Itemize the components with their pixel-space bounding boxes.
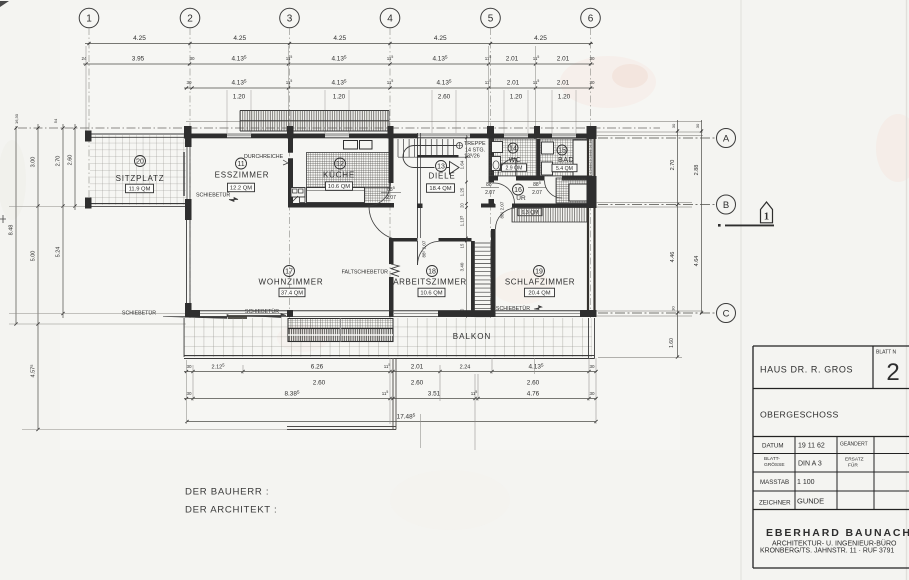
svg-text:KRONBERG/TS. JAHNSTR. 11 · RUF: KRONBERG/TS. JAHNSTR. 11 · RUF 3791 [760,548,894,555]
svg-text:2.07: 2.07 [386,195,396,201]
svg-text:10.6 QM: 10.6 QM [328,184,350,190]
svg-text:2.01: 2.01 [557,56,570,63]
svg-text:13: 13 [437,164,445,171]
svg-text:ARCHITEKTUR- U. INGENIEUR-BÜRO: ARCHITEKTUR- U. INGENIEUR-BÜRO [772,540,897,548]
svg-text:B: B [723,200,729,211]
svg-text:30: 30 [589,391,595,396]
svg-text:4: 4 [387,14,393,25]
svg-text:ARBEITSZIMMER: ARBEITSZIMMER [393,278,467,287]
svg-text:37.4 QM: 37.4 QM [281,291,303,297]
svg-text:12: 12 [336,161,344,168]
svg-text:1.64: 1.64 [460,160,465,169]
svg-text:DER ARCHITEKT :: DER ARCHITEKT : [185,505,277,516]
svg-text:8.48: 8.48 [9,225,15,236]
svg-text:10.6 QM: 10.6 QM [420,291,442,297]
svg-text:30: 30 [186,80,192,85]
svg-text:6.26: 6.26 [311,364,324,371]
svg-text:15: 15 [460,243,465,248]
svg-text:DIN A 3: DIN A 3 [798,461,822,468]
svg-text:30: 30 [186,364,192,369]
svg-text:FALTSCHIEBETÜR: FALTSCHIEBETÜR [342,269,389,276]
svg-text:SCHLAFZIMMER: SCHLAFZIMMER [505,278,575,287]
svg-text:4.64: 4.64 [694,256,700,267]
svg-text:88⁵ 2.07: 88⁵ 2.07 [422,240,427,257]
svg-text:3.95: 3.95 [132,56,145,63]
svg-text:ZEICHNER: ZEICHNER [759,500,791,507]
svg-text:TREPPE: TREPPE [464,141,486,147]
svg-text:2.70: 2.70 [56,156,62,167]
svg-text:2.88: 2.88 [694,165,700,176]
svg-text:30: 30 [589,364,595,369]
svg-text:15: 15 [558,148,566,155]
svg-text:DATUM: DATUM [762,443,784,450]
svg-text:A: A [723,133,730,144]
svg-text:BLATT-: BLATT- [764,456,780,462]
svg-text:WOHNZIMMER: WOHNZIMMER [259,278,324,287]
svg-text:4.46: 4.46 [670,252,676,263]
svg-text:1.20: 1.20 [233,94,246,101]
svg-text:OBERGESCHOSS: OBERGESCHOSS [760,410,839,420]
svg-text:20: 20 [460,203,465,208]
svg-text:30: 30 [671,306,676,311]
svg-text:SCHIEBETÜR: SCHIEBETÜR [496,305,530,312]
svg-text:12.2 QM: 12.2 QM [230,186,252,192]
svg-text:SITZPLATZ: SITZPLATZ [116,174,165,183]
svg-text:2.9 QM: 2.9 QM [505,165,522,171]
svg-text:17: 17 [285,269,293,276]
svg-text:BALKON: BALKON [453,332,491,341]
svg-text:6: 6 [588,14,594,25]
svg-text:SCHIEBETÜR: SCHIEBETÜR [245,308,279,315]
svg-text:ERSATZ: ERSATZ [845,457,864,463]
svg-text:1.20: 1.20 [558,94,571,101]
svg-text:2.60: 2.60 [527,380,540,387]
svg-text:1.20: 1.20 [510,94,523,101]
svg-text:1.20: 1.20 [333,94,346,101]
svg-text:1: 1 [764,212,769,223]
svg-text:GUNDE: GUNDE [797,497,824,506]
svg-text:11: 11 [237,161,244,168]
svg-text:1 100: 1 100 [797,479,815,486]
svg-text:20.4 QM: 20.4 QM [528,291,550,297]
svg-text:5.4 QM: 5.4 QM [556,166,573,172]
svg-text:2.70: 2.70 [670,160,676,171]
svg-text:DIELE: DIELE [428,172,455,181]
svg-text:30: 30 [186,391,192,396]
svg-text:2: 2 [886,359,899,386]
svg-text:54: 54 [53,118,58,123]
svg-text:30: 30 [589,80,595,85]
svg-text:20: 20 [136,159,144,166]
svg-text:5: 5 [488,14,494,25]
svg-text:2.60: 2.60 [438,94,451,101]
svg-text:1.25: 1.25 [460,187,465,196]
svg-text:SCHIEBETÜR: SCHIEBETÜR [122,310,156,317]
svg-text:3.40: 3.40 [460,262,465,271]
svg-text:WC: WC [509,157,522,164]
svg-text:2.24: 2.24 [460,365,471,371]
svg-text:2.07: 2.07 [532,190,542,196]
svg-text:EBERHARD BAUNACH: EBERHARD BAUNACH [766,527,909,539]
svg-text:18.4 QM: 18.4 QM [429,186,451,192]
svg-text:C: C [723,308,730,319]
svg-text:5.00: 5.00 [31,251,37,262]
svg-text:30: 30 [189,56,195,61]
svg-text:BAD: BAD [558,157,574,164]
svg-text:3.00: 3.00 [31,157,37,168]
svg-text:DURCHREICHE: DURCHREICHE [244,154,284,160]
svg-text:GRÖSSE: GRÖSSE [764,461,785,468]
svg-text:4.25: 4.25 [333,35,346,42]
svg-text:4.25: 4.25 [233,35,246,42]
svg-text:2: 2 [187,14,193,25]
svg-text:BLATT N: BLATT N [876,350,896,356]
svg-text:16: 16 [514,187,522,194]
svg-text:GEÄNDERT: GEÄNDERT [840,441,868,448]
svg-text:2.01: 2.01 [557,80,570,87]
svg-text:ESSZIMMER: ESSZIMMER [215,171,270,180]
svg-text:4.25: 4.25 [534,35,547,42]
svg-text:4.76: 4.76 [527,391,540,398]
svg-text:30: 30 [671,123,676,128]
svg-text:19: 19 [535,269,543,276]
svg-text:2.07: 2.07 [485,190,495,196]
svg-text:30: 30 [589,56,595,61]
svg-text:14: 14 [509,146,517,153]
svg-text:DER BAUHERR :: DER BAUHERR : [185,487,269,498]
svg-text:2.01: 2.01 [411,364,424,371]
svg-text:4.25: 4.25 [133,35,146,42]
svg-text:1.60: 1.60 [669,338,675,348]
svg-text:19 11 62: 19 11 62 [798,443,825,450]
svg-text:2.60: 2.60 [313,380,326,387]
svg-text:16,30: 16,30 [14,113,19,124]
svg-text:1: 1 [86,14,92,25]
svg-text:HAUS DR. R. GROS: HAUS DR. R. GROS [760,365,853,375]
svg-text:11.9 QM: 11.9 QM [129,187,151,193]
svg-text:2.60: 2.60 [411,380,424,387]
svg-text:2.01: 2.01 [506,56,519,63]
svg-text:FÜR: FÜR [848,462,858,469]
svg-text:4.25: 4.25 [434,35,447,42]
svg-text:2.01: 2.01 [507,80,520,87]
svg-text:18: 18 [428,269,436,276]
svg-text:MASSTAB: MASSTAB [760,479,789,486]
svg-text:2.60: 2.60 [68,155,74,166]
svg-text:3: 3 [287,14,293,25]
svg-text:3.51: 3.51 [428,391,441,398]
svg-text:5.24: 5.24 [56,247,62,258]
svg-text:SCHIEBETÜR: SCHIEBETÜR [196,192,230,199]
svg-text:KÜCHE: KÜCHE [323,171,355,180]
svg-text:UR: UR [516,195,526,202]
svg-text:30: 30 [695,123,700,128]
